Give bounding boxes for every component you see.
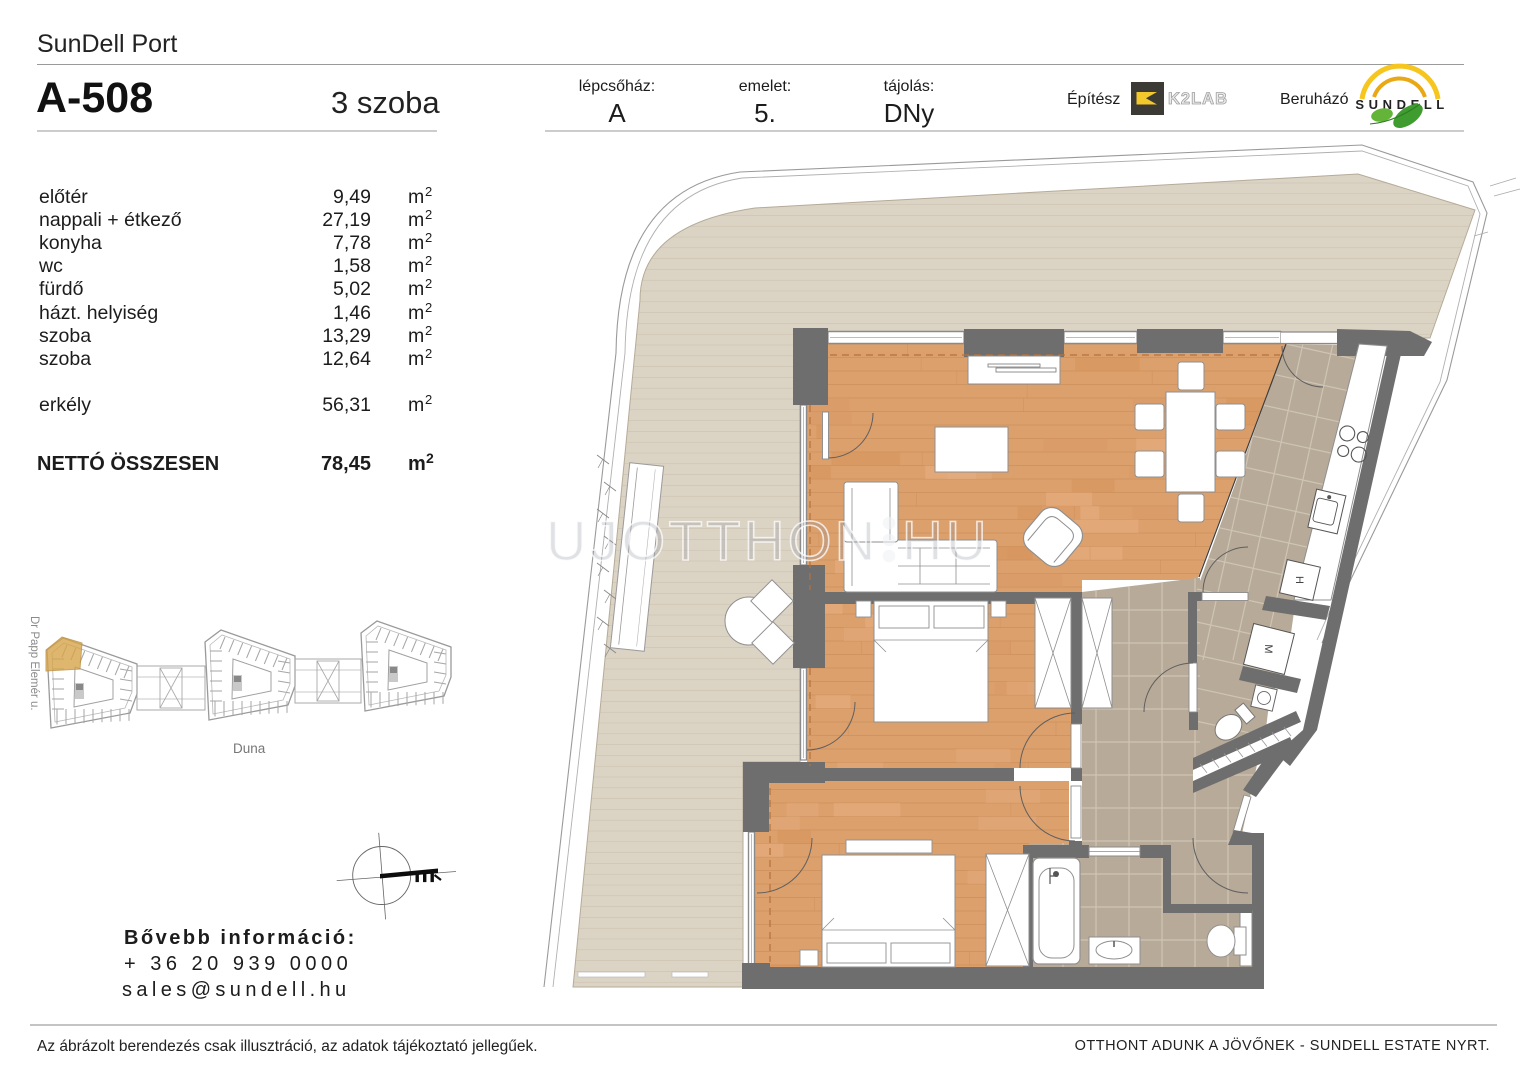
svg-text:nappali + étkező: nappali + étkező bbox=[39, 209, 182, 231]
svg-text:erkély: erkély bbox=[39, 394, 91, 416]
svg-text:házt. helyiség: házt. helyiség bbox=[39, 302, 158, 324]
svg-text:M: M bbox=[1262, 644, 1274, 654]
svg-text:m: m bbox=[408, 302, 424, 324]
svg-text:56,31: 56,31 bbox=[322, 394, 371, 416]
svg-text:Bővebb információ:: Bővebb információ: bbox=[124, 927, 357, 949]
svg-text:szoba: szoba bbox=[39, 348, 91, 370]
svg-text:S U N D E L L: S U N D E L L bbox=[1355, 97, 1444, 112]
svg-text:3 szoba: 3 szoba bbox=[331, 85, 440, 120]
svg-text:DNy: DNy bbox=[884, 98, 935, 128]
svg-text:emelet:: emelet: bbox=[739, 78, 791, 95]
svg-text:2: 2 bbox=[426, 450, 434, 466]
svg-text:H: H bbox=[1293, 576, 1305, 584]
svg-text:2: 2 bbox=[425, 230, 432, 245]
svg-text:NETTÓ ÖSSZESEN: NETTÓ ÖSSZESEN bbox=[37, 451, 219, 475]
svg-text:Építész: Építész bbox=[1067, 89, 1120, 108]
svg-text:2: 2 bbox=[425, 346, 432, 361]
svg-text:2: 2 bbox=[425, 323, 432, 338]
svg-text:m: m bbox=[408, 453, 426, 475]
svg-text:wc: wc bbox=[38, 255, 63, 277]
svg-text:előtér: előtér bbox=[39, 186, 88, 208]
svg-text:13,29: 13,29 bbox=[322, 325, 371, 347]
svg-text:sales@sundell.hu: sales@sundell.hu bbox=[122, 979, 351, 1001]
svg-text:1,58: 1,58 bbox=[333, 255, 371, 277]
svg-text:9,49: 9,49 bbox=[333, 186, 371, 208]
svg-text:konyha: konyha bbox=[39, 232, 102, 254]
svg-text:szoba: szoba bbox=[39, 325, 91, 347]
svg-text:m: m bbox=[408, 325, 424, 347]
svg-text:tájolás:: tájolás: bbox=[884, 78, 935, 95]
svg-text:m: m bbox=[408, 209, 424, 231]
svg-text:Az ábrázolt berendezés csak il: Az ábrázolt berendezés csak illusztráció… bbox=[37, 1038, 538, 1055]
svg-text:K2LAB: K2LAB bbox=[1168, 90, 1228, 108]
svg-text:HU: HU bbox=[902, 509, 990, 572]
svg-text:m: m bbox=[408, 255, 424, 277]
svg-text:A-508: A-508 bbox=[36, 74, 153, 122]
svg-text:m: m bbox=[408, 186, 424, 208]
svg-text:m: m bbox=[408, 232, 424, 254]
svg-text:Duna: Duna bbox=[233, 741, 266, 756]
svg-text:Beruházó: Beruházó bbox=[1280, 91, 1349, 108]
svg-text:7,78: 7,78 bbox=[333, 232, 371, 254]
svg-text:2: 2 bbox=[425, 276, 432, 291]
svg-text:1,46: 1,46 bbox=[333, 302, 371, 324]
svg-text:+ 36 20 939 0000: + 36 20 939 0000 bbox=[124, 953, 352, 975]
svg-text:5.: 5. bbox=[754, 98, 776, 128]
svg-text:78,45: 78,45 bbox=[321, 453, 371, 475]
svg-text:m: m bbox=[408, 394, 424, 416]
svg-text:OTTHONT ADUNK A JÖVŐNEK - SUND: OTTHONT ADUNK A JÖVŐNEK - SUNDELL ESTATE… bbox=[1075, 1036, 1490, 1054]
svg-text:2: 2 bbox=[425, 207, 432, 222]
svg-text:2: 2 bbox=[425, 253, 432, 268]
svg-text:5,02: 5,02 bbox=[333, 278, 371, 300]
svg-text:SunDell Port: SunDell Port bbox=[37, 30, 177, 58]
svg-text:27,19: 27,19 bbox=[322, 209, 371, 231]
svg-text:UJOTTHON: UJOTTHON bbox=[546, 509, 879, 572]
svg-text:fürdő: fürdő bbox=[39, 278, 84, 300]
svg-text:2: 2 bbox=[425, 300, 432, 315]
svg-text:A: A bbox=[608, 98, 626, 128]
svg-text:2: 2 bbox=[425, 184, 432, 199]
svg-text:12,64: 12,64 bbox=[322, 348, 371, 370]
svg-text:lépcsőház:: lépcsőház: bbox=[579, 78, 656, 95]
svg-text:2: 2 bbox=[425, 392, 432, 407]
svg-text:Dr Papp Elemér u.: Dr Papp Elemér u. bbox=[28, 616, 40, 711]
svg-text:m: m bbox=[408, 348, 424, 370]
svg-text:m: m bbox=[408, 278, 424, 300]
